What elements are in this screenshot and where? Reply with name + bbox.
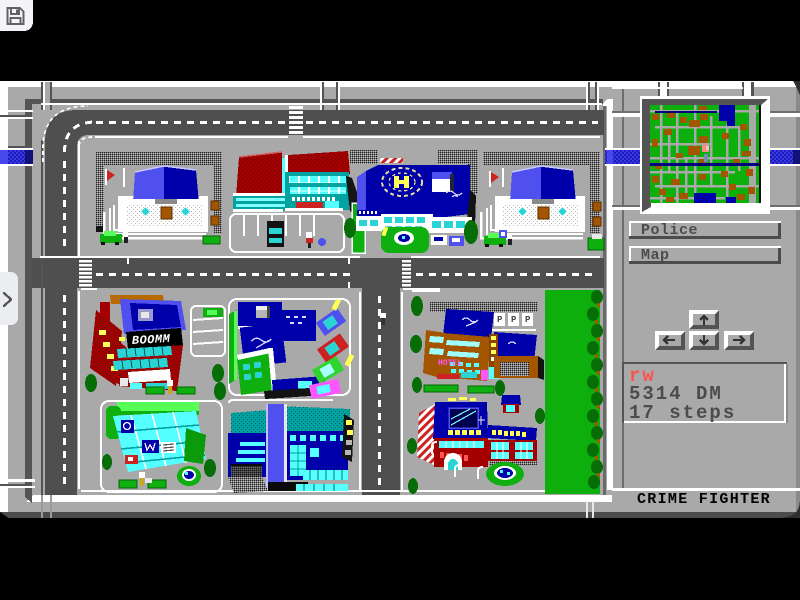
svg-text:HOTEL: HOTEL xyxy=(438,359,462,368)
svg-text:CRIME FIGHTER: CRIME FIGHTER xyxy=(637,491,771,508)
svg-text:P: P xyxy=(497,315,503,325)
svg-text:P: P xyxy=(525,315,531,325)
svg-text:P: P xyxy=(511,315,517,325)
svg-text:Police: Police xyxy=(641,222,698,239)
svg-text:BOOMM: BOOMM xyxy=(131,332,170,348)
svg-text:Map: Map xyxy=(641,247,670,264)
svg-text:17 steps: 17 steps xyxy=(629,402,736,424)
